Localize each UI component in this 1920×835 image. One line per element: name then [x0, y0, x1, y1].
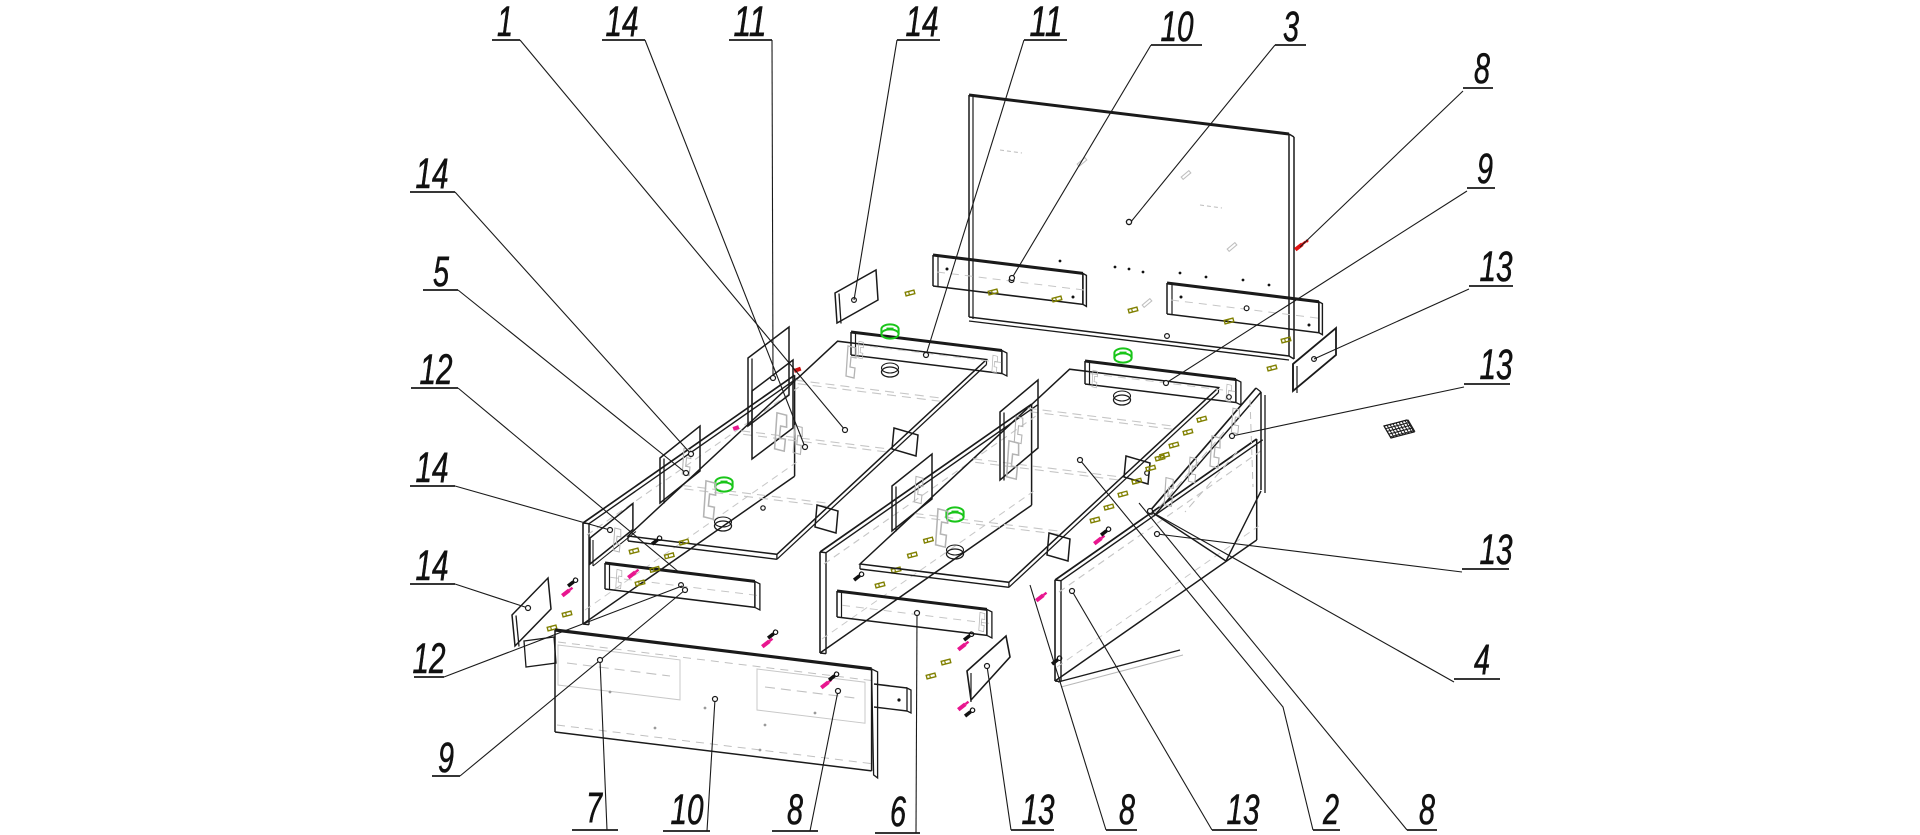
svg-text:3: 3 — [1283, 3, 1299, 51]
svg-text:5: 5 — [433, 248, 450, 296]
svg-text:8: 8 — [1474, 45, 1490, 93]
svg-text:14: 14 — [416, 150, 449, 198]
svg-text:10: 10 — [671, 786, 704, 834]
svg-text:14: 14 — [906, 0, 939, 46]
svg-text:13: 13 — [1227, 786, 1260, 834]
svg-text:10: 10 — [1161, 3, 1194, 51]
svg-text:9: 9 — [438, 734, 454, 782]
svg-text:7: 7 — [586, 784, 603, 832]
svg-text:13: 13 — [1480, 243, 1513, 291]
svg-text:8: 8 — [1419, 786, 1435, 834]
svg-text:6: 6 — [890, 788, 906, 835]
svg-text:14: 14 — [606, 0, 639, 46]
svg-text:2: 2 — [1322, 786, 1339, 834]
svg-text:11: 11 — [1030, 0, 1063, 46]
svg-text:14: 14 — [416, 444, 449, 492]
svg-text:4: 4 — [1474, 636, 1490, 684]
svg-text:12: 12 — [420, 346, 453, 394]
svg-text:9: 9 — [1477, 145, 1493, 193]
svg-text:11: 11 — [734, 0, 767, 46]
svg-text:1: 1 — [497, 0, 513, 46]
svg-text:8: 8 — [787, 786, 803, 834]
svg-text:8: 8 — [1119, 786, 1135, 834]
svg-text:13: 13 — [1022, 786, 1055, 834]
svg-text:14: 14 — [416, 542, 449, 590]
svg-text:13: 13 — [1480, 526, 1513, 574]
svg-text:12: 12 — [413, 635, 446, 683]
svg-text:13: 13 — [1480, 341, 1513, 389]
